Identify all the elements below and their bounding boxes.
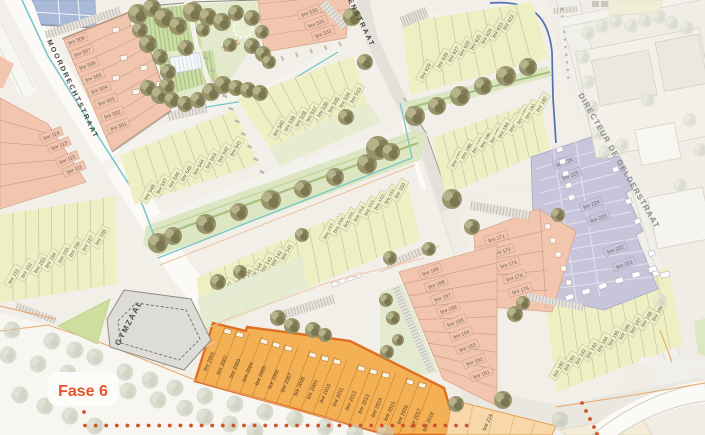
svg-text:Fase 6: Fase 6 xyxy=(58,383,108,400)
